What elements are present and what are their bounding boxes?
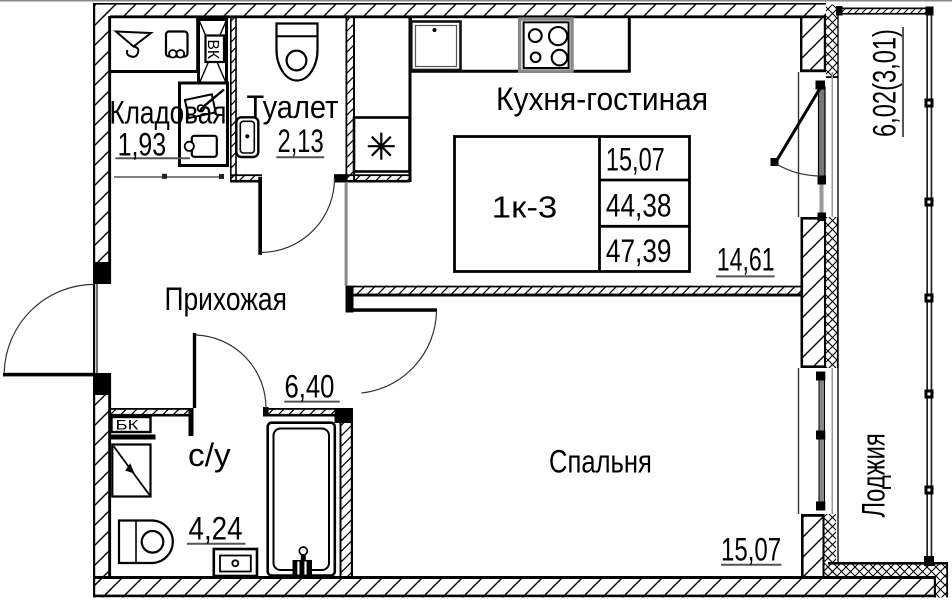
svg-text:4,24: 4,24 — [189, 511, 243, 546]
svg-text:1,93: 1,93 — [118, 127, 167, 163]
svg-text:с/у: с/у — [188, 437, 231, 473]
svg-text:Туалет: Туалет — [247, 90, 339, 126]
svg-text:44,38: 44,38 — [606, 188, 672, 224]
svg-text:6,40: 6,40 — [285, 369, 335, 406]
svg-text:1к-3: 1к-3 — [492, 189, 558, 224]
svg-text:2,13: 2,13 — [278, 123, 324, 160]
svg-text:Кухня-гостиная: Кухня-гостиная — [496, 81, 708, 117]
svg-text:Прихожая: Прихожая — [165, 282, 287, 318]
svg-text:Спальня: Спальня — [549, 445, 652, 480]
svg-text:Лоджия: Лоджия — [855, 433, 891, 517]
svg-text:15,07: 15,07 — [721, 532, 781, 568]
svg-text:Кладовая: Кладовая — [110, 96, 227, 131]
svg-text:БК: БК — [116, 418, 139, 433]
svg-text:47,39: 47,39 — [606, 233, 672, 269]
svg-text:14,61: 14,61 — [717, 241, 775, 278]
svg-text:6,02(3,01): 6,02(3,01) — [867, 29, 904, 137]
svg-text:15,07: 15,07 — [606, 142, 665, 179]
svg-text:ВК: ВК — [204, 40, 221, 59]
